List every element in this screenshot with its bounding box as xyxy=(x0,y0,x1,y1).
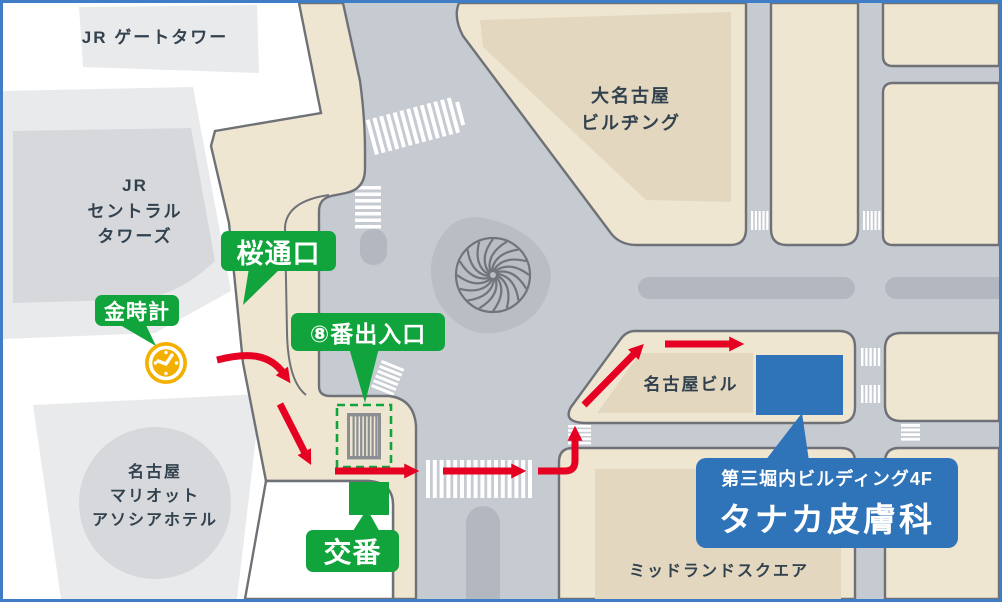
block-top-c-lower xyxy=(883,83,999,245)
dai-nagoya-building-label: 大名古屋 ビルヂング xyxy=(543,83,719,137)
gold-clock-label: 金時計 xyxy=(95,295,179,326)
midland-square-label: ミッドランドスクエア xyxy=(603,560,835,584)
police-box-square xyxy=(349,482,389,515)
nagoya-biru-label: 名古屋ビル xyxy=(621,372,761,398)
jr-central-towers-label: JR セントラル タワーズ xyxy=(55,173,215,250)
sakura-dori-exit-label: 桜通口 xyxy=(221,231,336,271)
access-map: JR ゲートタワー JR セントラル タワーズ 大名古屋 ビルヂング 名古屋ビル… xyxy=(0,0,1002,602)
exit-8-label: ⑧番出入口 xyxy=(291,313,445,351)
jr-gate-tower-label: JR ゲートタワー xyxy=(65,25,245,51)
destination-building-floor: 第三堀内ビルディング4F xyxy=(721,465,933,491)
koban-label: 交番 xyxy=(306,530,399,572)
clock-icon xyxy=(145,342,187,384)
block-east xyxy=(885,333,999,421)
block-top-c-upper xyxy=(883,3,999,66)
destination-callout: 第三堀内ビルディング4F タナカ皮膚科 xyxy=(696,458,958,548)
destination-clinic-name: タナカ皮膚科 xyxy=(719,493,935,541)
block-top-b xyxy=(771,3,858,245)
marriott-hotel-label: 名古屋 マリオット アソシアホテル xyxy=(61,461,249,533)
destination-building-rect xyxy=(756,355,843,415)
